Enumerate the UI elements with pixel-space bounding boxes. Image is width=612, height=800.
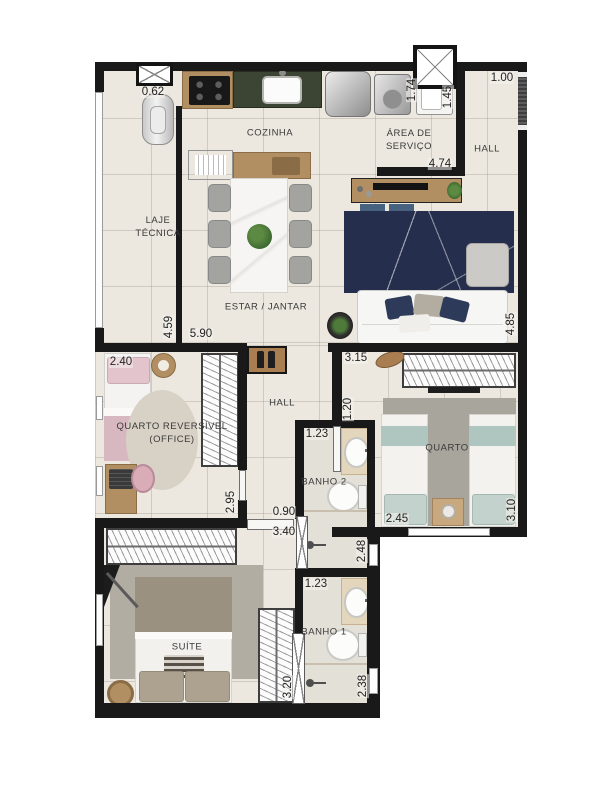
banho2-door [296,516,308,569]
dim-estar-len: 5.90 [189,328,213,340]
dim-suite-depth: 3.20 [282,675,294,699]
window-quarto [408,528,490,536]
console-plant [447,182,462,199]
banho2-shower-line [304,510,367,512]
water-heater-panel [150,106,166,134]
floor-plant [327,312,353,339]
banho1-sink [344,587,369,618]
banho2-sink [344,437,369,468]
shaft-laje [136,63,173,86]
banho2-shower-arm [312,544,326,546]
double-bed-fold [135,632,232,639]
ottoman [466,243,509,287]
fridge [325,71,371,117]
wall-bottom [95,703,380,718]
entrance-door-frame [518,125,527,130]
room-label-office-line1: QUARTO REVERSÍVEL [116,420,227,433]
banho2-toilet-tank [358,485,367,509]
wall-mid-left [95,343,247,352]
dim-suite-width: 3.40 [272,526,296,538]
bottle [268,351,275,368]
dim-banho1-width: 1.23 [304,578,328,590]
quarto-tv [428,387,480,393]
dim-banho2-width: 1.23 [305,428,329,440]
dim-quarto-width: 2.45 [385,513,409,525]
wall-left-top [95,62,104,92]
shaft-top-right [413,45,457,89]
room-label-hall-top: HALL [474,143,500,156]
banho1-shower-arm [312,682,326,684]
dim-estar-depth: 4.59 [163,315,175,339]
entrance-door-frame [518,72,527,77]
dim-hall-width: 0.90 [272,506,296,518]
room-label-hall-mid: HALL [269,397,295,410]
dim-office-width: 2.40 [109,356,133,368]
window-banho2 [369,544,378,566]
room-label-office: QUARTO REVERSÍVEL (OFFICE) [116,420,227,446]
dim-servico-1: 1.74 [406,78,418,102]
window-office-1 [96,396,103,420]
laundry-tank-basin [421,87,442,110]
room-label-area-servico-line2: SERVIÇO [386,140,432,153]
dim-banho2-depth: 2.48 [356,539,368,563]
laptop [109,469,133,489]
window-banho1 [369,668,378,694]
room-label-area-servico-line1: ÁREA DE [386,127,432,140]
quarto-door [333,426,341,472]
bottle [257,351,264,368]
room-label-banho2: BANHO 2 [301,476,346,489]
dining-chair [289,256,312,284]
room-label-laje-line1: LAJE [135,214,180,227]
room-label-laje: LAJE TÉCNICA [135,214,180,240]
banho1-shower-line [304,663,367,665]
desk-chair [131,464,155,493]
dim-office-depth: 2.95 [225,490,237,514]
console-decor [366,191,372,197]
kitchen-sink [262,76,302,104]
wall-banho2-left [295,420,304,519]
dim-estar-right: 4.85 [505,312,517,336]
kitchen-island-appliance [188,150,233,180]
dining-chair [289,220,312,248]
wall-banho2-right [367,420,375,537]
dining-chair [208,220,231,248]
dim-banho1-depth: 2.38 [357,674,369,698]
room-label-quarto: QUARTO [425,442,468,455]
wall-mid-right [328,343,527,352]
wall-banho-divider [295,568,375,577]
banho1-toilet-tank [358,633,367,657]
dining-chair [208,184,231,212]
floor-plan: COZINHA ÁREA DE SERVIÇO HALL LAJE TÉCNIC… [0,0,612,800]
table-plant [247,224,272,249]
dining-chair [208,256,231,284]
window-suite [96,594,103,646]
quarto-wardrobe [402,353,516,388]
window-laje [95,92,103,328]
dim-quarto-depth: 3.10 [506,498,518,522]
bar-cabinet [247,346,287,374]
window-office-2 [96,466,103,496]
tv [373,183,428,190]
wall-suite-top [95,518,247,528]
dim-quarto-top: 3.15 [344,352,368,364]
office-wardrobe [201,353,239,467]
dim-servico-2: 1.45 [442,85,454,109]
room-label-suite: SUÍTE [172,641,202,654]
dim-laje-shaft: 0.62 [141,86,165,98]
dim-servico-len: 4.74 [428,158,452,170]
room-label-cozinha: COZINHA [247,127,293,140]
cutting-board [272,157,300,175]
wall-right [518,62,527,537]
room-label-estar-jantar: ESTAR / JANTAR [225,301,307,314]
dim-quarto-entry: 1.20 [342,397,354,421]
office-door [239,470,246,501]
dim-hall-entry: 1.00 [490,72,514,84]
suite-wardrobe-top [106,528,237,565]
room-label-banho1: BANHO 1 [301,626,346,639]
room-label-area-servico: ÁREA DE SERVIÇO [386,127,432,153]
wall-office-right [238,343,247,470]
wall-quarto-left [332,343,342,427]
dining-chair [289,184,312,212]
twin-bed-right-band [469,426,516,446]
nightstand-lamp [441,504,456,519]
wall-servico-right [456,62,465,176]
double-bed-blanket [135,577,232,632]
sofa-throw [398,314,430,333]
room-label-laje-line2: TÉCNICA [135,227,180,240]
room-label-office-line2: (OFFICE) [116,433,227,446]
suite-pillow [185,671,230,702]
console-decor [357,186,363,192]
cooktop [189,76,230,105]
twin-bed-left-band [381,426,428,446]
suite-pillow [139,671,184,702]
side-table-top [158,360,169,371]
sofa-seat-line [362,324,503,325]
entrance-door [518,76,527,126]
